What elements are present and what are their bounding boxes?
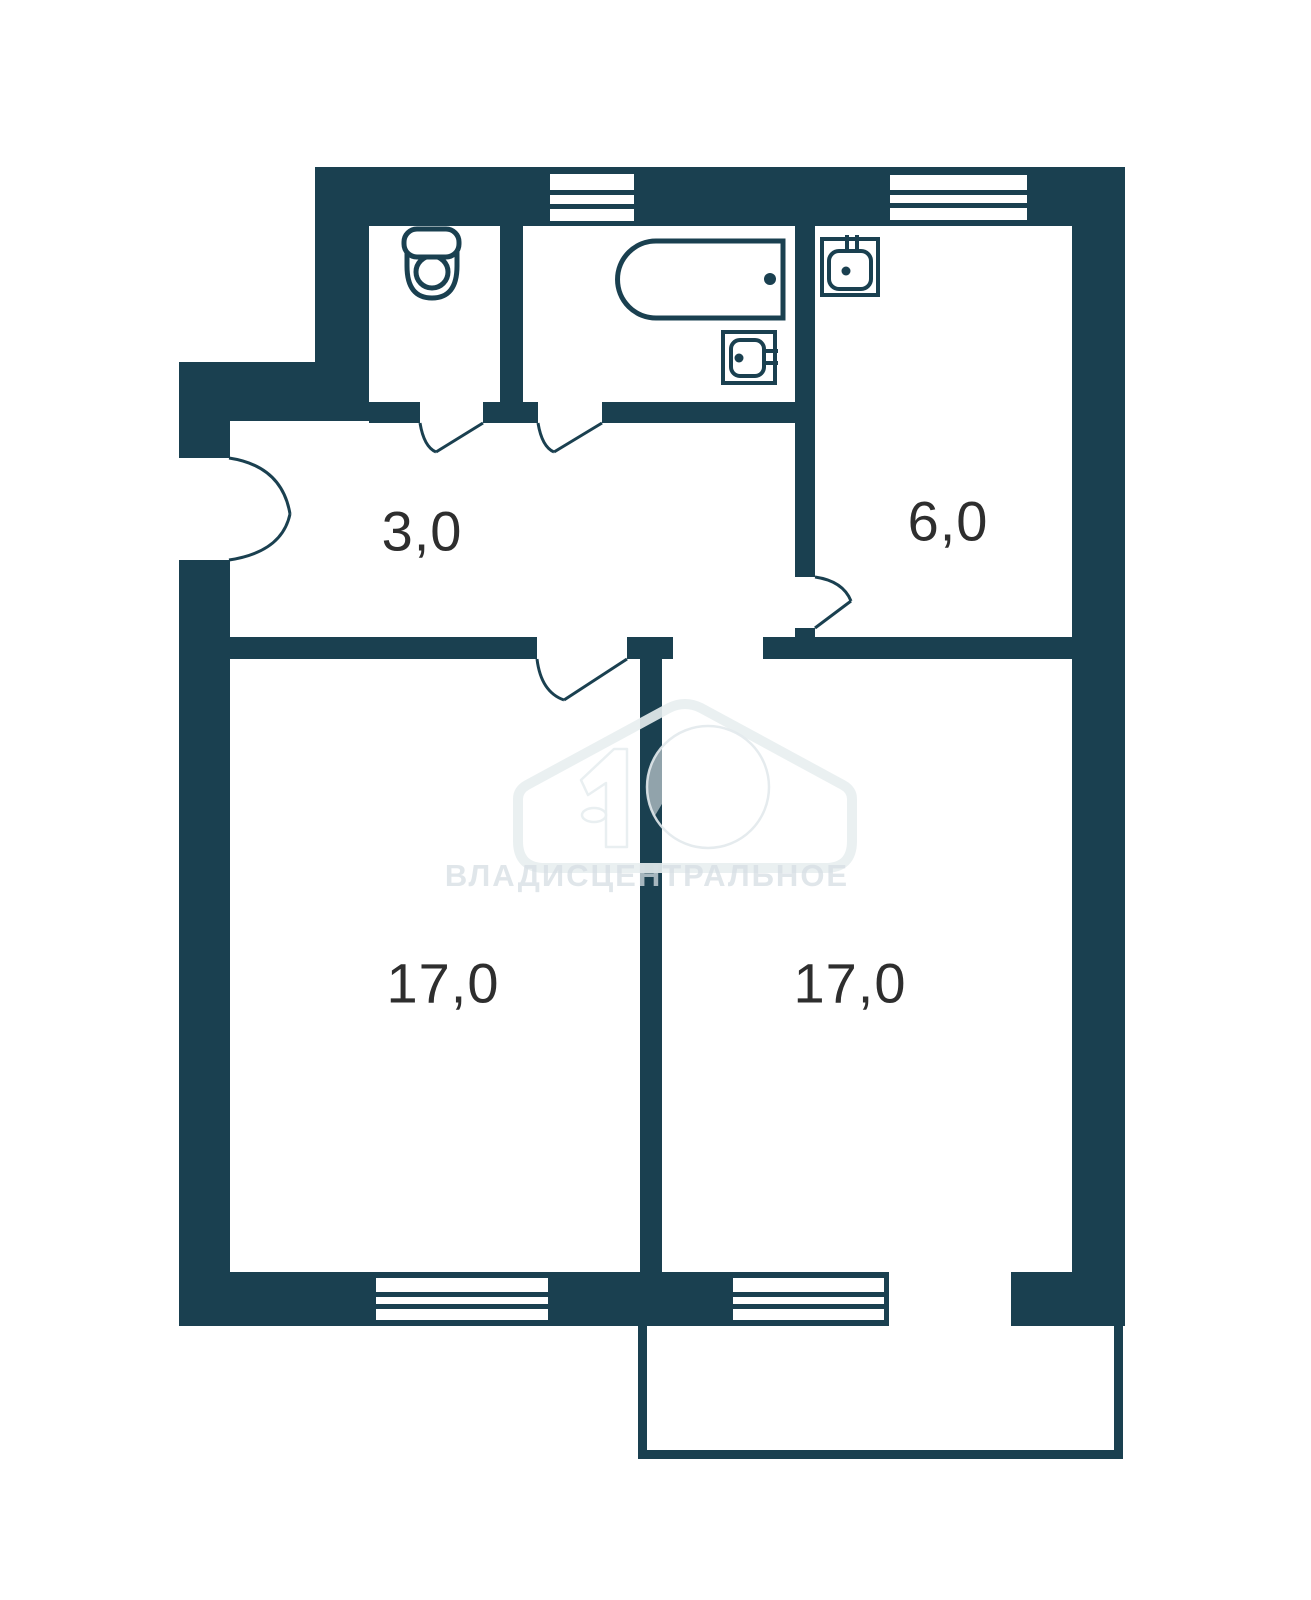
floor-plan: 3,06,017,017,0 ВЛАДИСЦЕНТРАЛЬНОЕ: [0, 0, 1311, 1600]
watermark-text: ВЛАДИСЦЕНТРАЛЬНОЕ: [445, 858, 849, 893]
watermark: ВЛАДИСЦЕНТРАЛЬНОЕ: [0, 0, 1311, 1600]
watermark-digit-ellipse: [582, 808, 606, 822]
watermark-digit-one: [581, 749, 627, 847]
